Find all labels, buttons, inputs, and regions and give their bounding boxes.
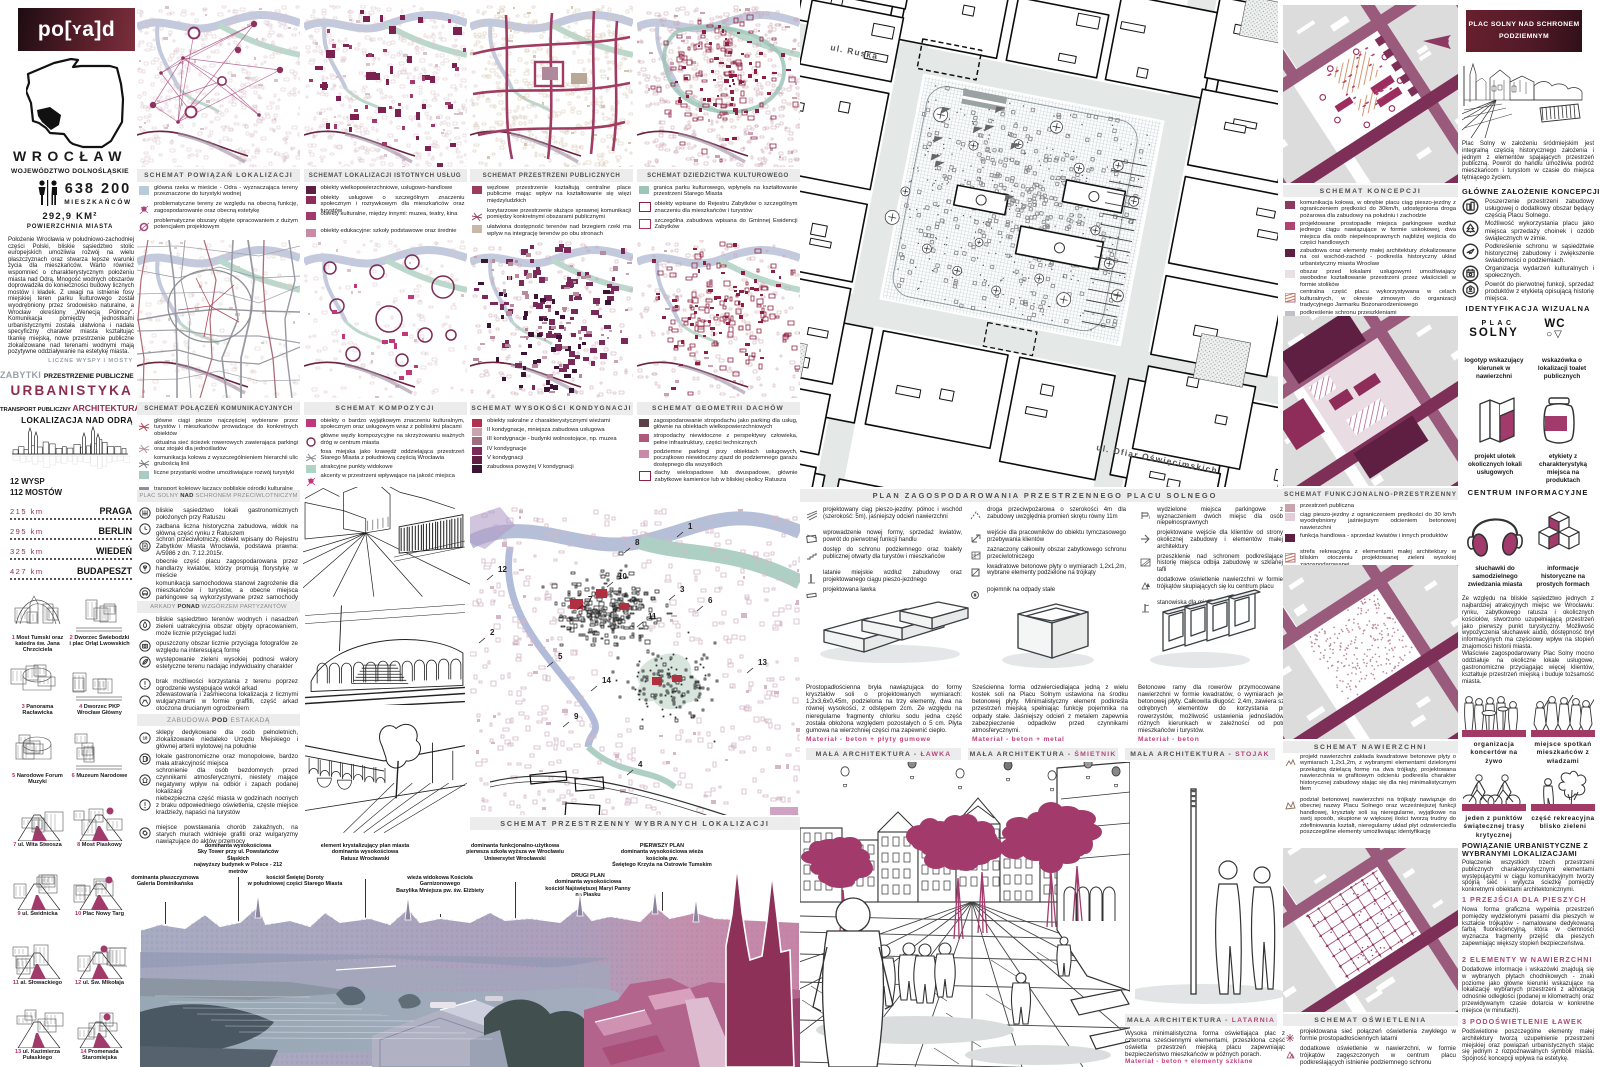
svg-text:18: 18	[143, 736, 148, 741]
svg-text:3: 3	[680, 585, 685, 594]
svg-text:6: 6	[708, 596, 713, 605]
svg-text:11: 11	[648, 612, 657, 621]
svg-text:i: i	[1149, 515, 1150, 521]
svg-text:8: 8	[635, 538, 640, 547]
svg-text:9: 9	[574, 712, 579, 721]
svg-text:5: 5	[558, 652, 563, 661]
svg-text:1: 1	[688, 522, 693, 531]
svg-text:2: 2	[490, 628, 495, 637]
svg-text:4: 4	[638, 760, 643, 769]
svg-text:12: 12	[498, 565, 507, 574]
svg-text:14: 14	[602, 676, 611, 685]
svg-text:10: 10	[618, 572, 627, 581]
svg-text:13: 13	[758, 658, 767, 667]
svg-text:7: 7	[588, 595, 593, 604]
